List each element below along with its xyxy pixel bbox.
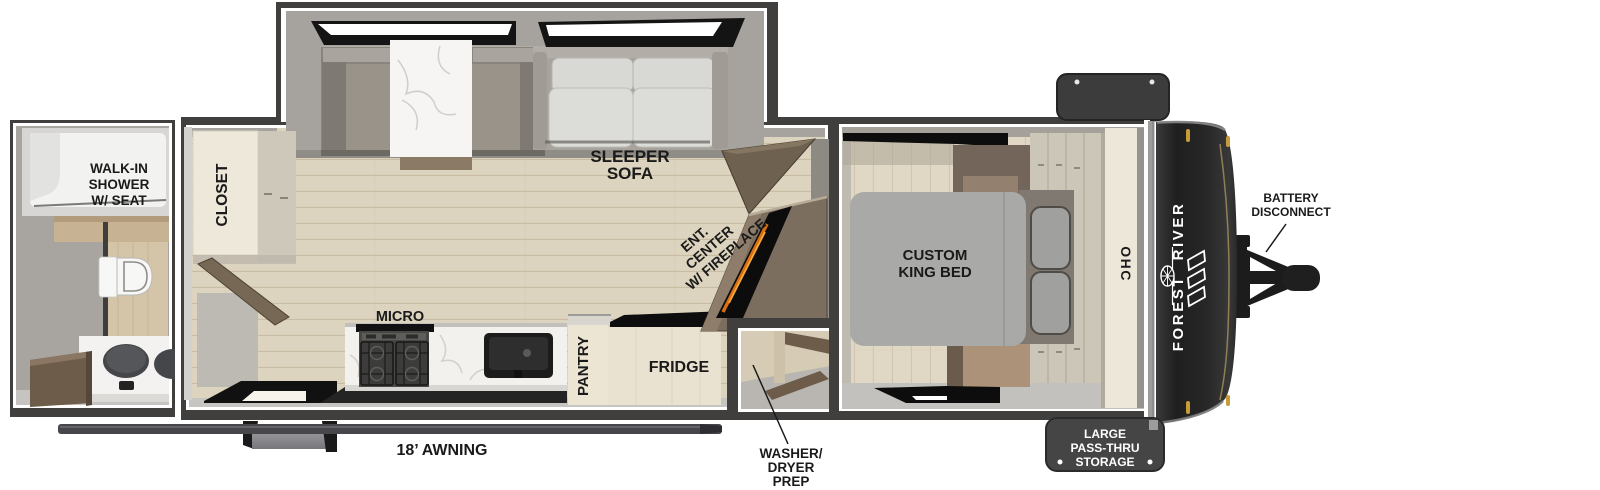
svg-text:CLOSET: CLOSET (214, 163, 231, 226)
svg-text:LARGE: LARGE (1084, 427, 1126, 441)
svg-text:DRYER: DRYER (768, 460, 815, 475)
svg-text:KING BED: KING BED (898, 264, 972, 281)
svg-text:W/ SEAT: W/ SEAT (91, 193, 147, 208)
svg-text:PANTRY: PANTRY (575, 336, 592, 396)
svg-text:PASS-THRU: PASS-THRU (1070, 441, 1139, 455)
svg-text:OHC: OHC (1118, 246, 1134, 282)
svg-text:WASHER/: WASHER/ (759, 446, 822, 461)
svg-text:STORAGE: STORAGE (1075, 455, 1134, 469)
svg-text:WALK-IN: WALK-IN (90, 161, 148, 176)
svg-text:FRIDGE: FRIDGE (649, 359, 710, 376)
svg-text:DISCONNECT: DISCONNECT (1251, 205, 1331, 219)
svg-text:SHOWER: SHOWER (89, 177, 150, 192)
svg-text:CUSTOM: CUSTOM (903, 247, 968, 264)
svg-text:PREP: PREP (773, 474, 810, 489)
svg-text:18’ AWNING: 18’ AWNING (397, 442, 488, 459)
svg-text:BATTERY: BATTERY (1263, 191, 1318, 205)
svg-text:SOFA: SOFA (607, 164, 653, 183)
svg-text:MICRO: MICRO (376, 309, 424, 325)
